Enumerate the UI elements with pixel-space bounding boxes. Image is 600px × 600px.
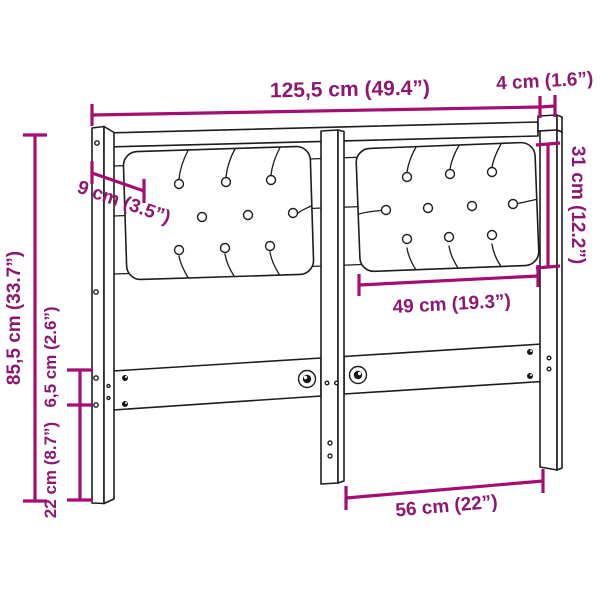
- dim-total-height-label: 85,5 cm (33.7”): [4, 251, 25, 385]
- right-cushion: [356, 142, 540, 272]
- dim-leg-span: 56 cm (22”): [346, 469, 543, 521]
- dim-total-width: 125,5 cm (49.4”): [92, 77, 540, 126]
- cam-lock-right: [350, 367, 367, 384]
- dim-rail-height: 6,5 cm (2.6”): [41, 306, 93, 407]
- dim-leg-height-label: 22 cm (8.7”): [41, 422, 60, 518]
- right-post: [540, 130, 562, 470]
- headboard-diagram-canvas: 125,5 cm (49.4”) 4 cm (1.6”) 31 cm (12.2…: [0, 0, 600, 600]
- dim-total-width-label: 125,5 cm (49.4”): [270, 77, 430, 103]
- cam-lock-left: [299, 371, 316, 388]
- dim-leg-height: 22 cm (8.7”): [41, 405, 93, 518]
- dim-frame-depth: 4 cm (1.6”): [496, 68, 594, 117]
- dim-cushion-height-label: 31 cm (12.2”): [567, 146, 588, 264]
- dim-rail-height-label: 6,5 cm (2.6”): [41, 306, 60, 407]
- center-post: [321, 130, 344, 484]
- dim-frame-depth-label: 4 cm (1.6”): [496, 68, 594, 94]
- dim-leg-span-label: 56 cm (22”): [395, 492, 499, 522]
- dim-cushion-width-label: 49 cm (19.3”): [392, 291, 511, 318]
- product-dimension-diagram: 125,5 cm (49.4”) 4 cm (1.6”) 31 cm (12.2…: [0, 0, 600, 600]
- dim-cushion-width: 49 cm (19.3”): [359, 265, 538, 318]
